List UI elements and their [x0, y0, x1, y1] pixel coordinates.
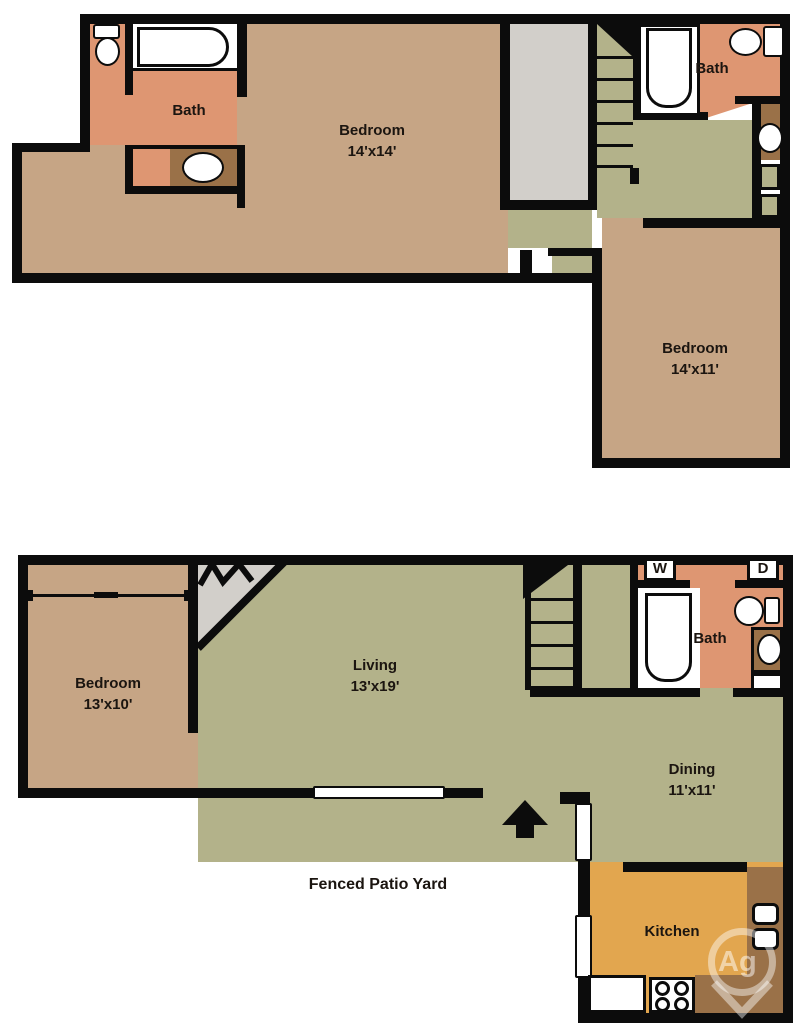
- wall-segment: [500, 200, 597, 210]
- wall-segment: [12, 143, 22, 283]
- room-dims: 13'x19': [295, 676, 455, 697]
- toilet-icon: [734, 596, 764, 626]
- closet-door-tick: [26, 590, 33, 601]
- wall-segment: [80, 14, 790, 24]
- room-label-bedroom-main: Bedroom 14'x14': [292, 120, 452, 162]
- washer-label: W: [653, 560, 667, 577]
- hallway-floor: [552, 256, 592, 273]
- room-name: Living: [295, 655, 455, 676]
- wall-segment: [735, 580, 783, 588]
- bedroom-main-floor: [22, 152, 90, 273]
- toilet-tank-icon: [763, 26, 784, 57]
- wall-segment: [623, 862, 747, 872]
- wall-segment: [12, 273, 602, 283]
- stair-tread: [597, 122, 633, 125]
- sink-icon: [757, 123, 783, 153]
- wall-segment: [125, 186, 245, 194]
- room-label-bath-front: Bath: [149, 100, 229, 121]
- room-name: Dining: [612, 759, 772, 780]
- stair-tread: [530, 686, 573, 689]
- room-label-bath-rear: Bath: [672, 58, 752, 79]
- watermark-pin-tail-icon: [700, 920, 790, 1025]
- vanity-area: [133, 149, 170, 186]
- sink-icon: [182, 152, 224, 183]
- wall-segment: [530, 688, 700, 697]
- wall-segment: [500, 14, 510, 210]
- room-label-living: Living 13'x19': [295, 655, 455, 697]
- stair-tread: [597, 78, 633, 81]
- hallway-floor: [597, 168, 633, 218]
- understair-stairs-icon: [190, 555, 300, 660]
- wall-segment: [735, 96, 788, 104]
- vanity-cabinet: [751, 673, 783, 691]
- entry-arrow-icon: [495, 795, 555, 843]
- stove-burner-icon: [655, 997, 670, 1012]
- dryer-label: D: [758, 560, 769, 577]
- bathtub-icon: [137, 27, 229, 67]
- washer-box: W: [644, 558, 676, 581]
- stove-burner-icon: [655, 981, 670, 996]
- wall-segment: [573, 565, 582, 693]
- room-dims: 14'x11': [615, 359, 775, 380]
- wall-segment: [12, 143, 90, 152]
- dryer-box: D: [747, 558, 779, 581]
- room-label-bedroom-second: Bedroom 14'x11': [615, 338, 775, 380]
- room-label-bath-lower: Bath: [680, 628, 740, 649]
- stove-burner-icon: [674, 981, 689, 996]
- window: [575, 803, 592, 861]
- wall-segment: [133, 68, 237, 71]
- room-name: Bedroom: [292, 120, 452, 141]
- window: [313, 786, 445, 799]
- wall-segment: [237, 145, 245, 208]
- hallway-floor: [508, 210, 592, 248]
- room-name: Bedroom: [615, 338, 775, 359]
- toilet-icon: [95, 37, 120, 66]
- wall-segment: [780, 14, 790, 468]
- stair-tread: [530, 667, 573, 670]
- wall-segment: [643, 218, 790, 228]
- stair-tread: [597, 165, 633, 168]
- wall-segment: [588, 14, 597, 210]
- closet-door-tick: [94, 592, 118, 598]
- closet-floor: [510, 24, 588, 200]
- window: [575, 915, 592, 978]
- kitchen-counter-box: [588, 975, 646, 1013]
- toilet-icon: [729, 28, 762, 56]
- wall-segment: [630, 168, 639, 184]
- patio-label: Fenced Patio Yard: [258, 874, 498, 895]
- wall-segment: [630, 565, 638, 688]
- stove-burner-icon: [674, 997, 689, 1012]
- floor-plan: Bath Bedroom 14'x14' Bath Bedroom 14'x11…: [0, 0, 800, 1032]
- stair-tread: [530, 621, 573, 624]
- stair-tread: [597, 144, 633, 147]
- stair-tread: [597, 100, 633, 103]
- wall-segment: [80, 14, 90, 152]
- room-dims: 11'x11': [612, 780, 772, 801]
- hallway-floor: [633, 120, 752, 218]
- wall-segment: [520, 250, 532, 283]
- toilet-tank-icon: [764, 597, 780, 624]
- stair-tread: [530, 598, 573, 601]
- wall-segment: [592, 458, 790, 468]
- wall-segment: [125, 24, 133, 95]
- room-dims: 14'x14': [292, 141, 452, 162]
- wall-segment: [592, 248, 602, 458]
- wall-segment: [548, 248, 602, 256]
- wall-segment: [18, 555, 793, 565]
- wall-segment: [237, 24, 247, 97]
- sink-icon: [757, 634, 782, 665]
- room-label-dining: Dining 11'x11': [612, 759, 772, 801]
- stair-tread: [530, 644, 573, 647]
- room-label-bedroom-lower: Bedroom 13'x10': [38, 673, 178, 715]
- stair-tread: [597, 56, 633, 59]
- room-dims: 13'x10': [38, 694, 178, 715]
- wall-segment: [638, 580, 690, 588]
- wall-segment: [125, 145, 133, 190]
- linen-closet: [759, 194, 780, 218]
- room-name: Bedroom: [38, 673, 178, 694]
- linen-closet: [759, 164, 780, 190]
